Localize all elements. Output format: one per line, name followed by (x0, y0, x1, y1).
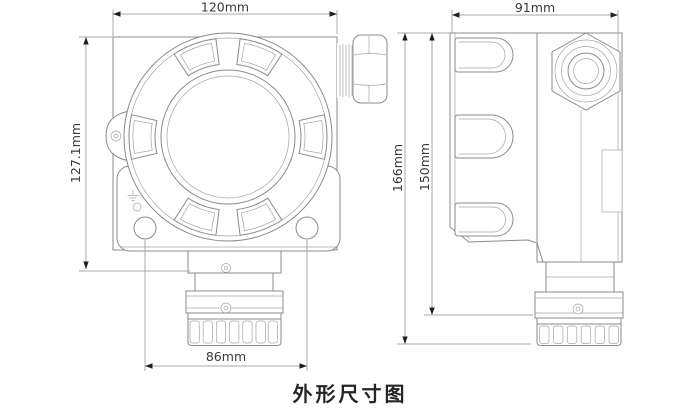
front-view (106, 33, 387, 346)
front-hole-spacing-label: 86mm (206, 349, 246, 364)
front-sensor-stack (186, 251, 283, 346)
dimension-side-body-height: 150mm (417, 33, 533, 315)
dimension-side-width: 91mm (452, 0, 618, 33)
front-height-label: 127.1mm (68, 123, 83, 183)
drawing-canvas: 120mm 127.1mm 86mm 91mm 166mm 150mm 外形尺寸… (0, 0, 700, 412)
mounting-hole-right (296, 217, 318, 239)
front-width-label: 120mm (201, 0, 249, 15)
side-width-label: 91mm (515, 0, 555, 15)
front-rib-cap (190, 321, 278, 343)
hinge-screw (111, 131, 121, 141)
side-total-height-label: 166mm (390, 144, 405, 192)
drawing-caption: 外形尺寸图 (293, 382, 408, 406)
front-conduit-gland (337, 35, 387, 103)
side-view (450, 33, 623, 346)
side-edge-clip (602, 150, 622, 212)
outline-dimension-drawing: 120mm 127.1mm 86mm 91mm 166mm 150mm 外形尺寸… (0, 0, 700, 412)
side-bezel-cover (450, 33, 537, 243)
side-body-height-label: 150mm (417, 143, 432, 191)
mounting-hole-left (134, 217, 156, 239)
dimension-front-width: 120mm (113, 0, 337, 36)
dimension-side-total-height: 166mm (390, 33, 531, 344)
